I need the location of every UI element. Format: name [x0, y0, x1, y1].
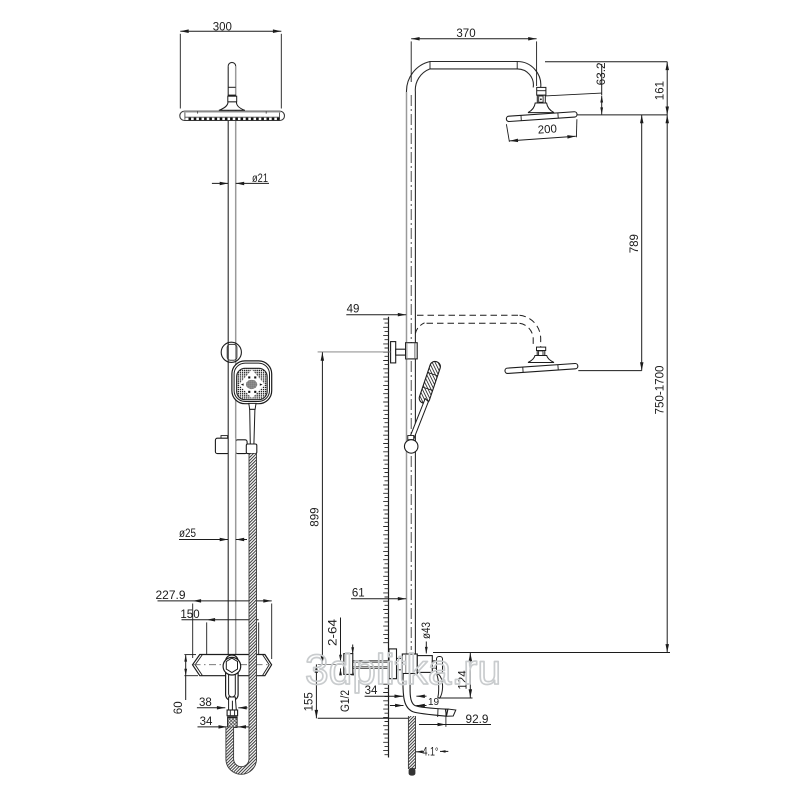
svg-text:150: 150: [180, 609, 199, 621]
svg-text:60: 60: [173, 701, 185, 714]
svg-text:19: 19: [428, 697, 440, 708]
svg-text:38: 38: [199, 697, 212, 709]
svg-text:61: 61: [352, 588, 365, 600]
svg-text:63.2: 63.2: [596, 62, 608, 85]
svg-text:2-64: 2-64: [328, 618, 340, 646]
svg-text:899: 899: [310, 508, 322, 527]
svg-text:ø25: ø25: [179, 528, 196, 540]
svg-text:ø21: ø21: [252, 173, 268, 185]
svg-text:92.9: 92.9: [466, 714, 489, 726]
svg-text:370: 370: [456, 28, 475, 40]
svg-text:161: 161: [655, 81, 667, 100]
svg-text:4.1°: 4.1°: [423, 747, 439, 759]
svg-text:34: 34: [200, 716, 213, 728]
svg-text:ø43: ø43: [421, 622, 433, 639]
svg-text:155: 155: [304, 692, 316, 711]
svg-text:3dplitka.ru: 3dplitka.ru: [305, 647, 501, 694]
svg-text:227.9: 227.9: [156, 590, 186, 602]
svg-text:300: 300: [213, 21, 232, 33]
svg-text:750-1700: 750-1700: [655, 366, 667, 415]
svg-text:200: 200: [537, 123, 557, 136]
svg-text:789: 789: [629, 234, 641, 253]
svg-text:49: 49: [347, 303, 360, 315]
